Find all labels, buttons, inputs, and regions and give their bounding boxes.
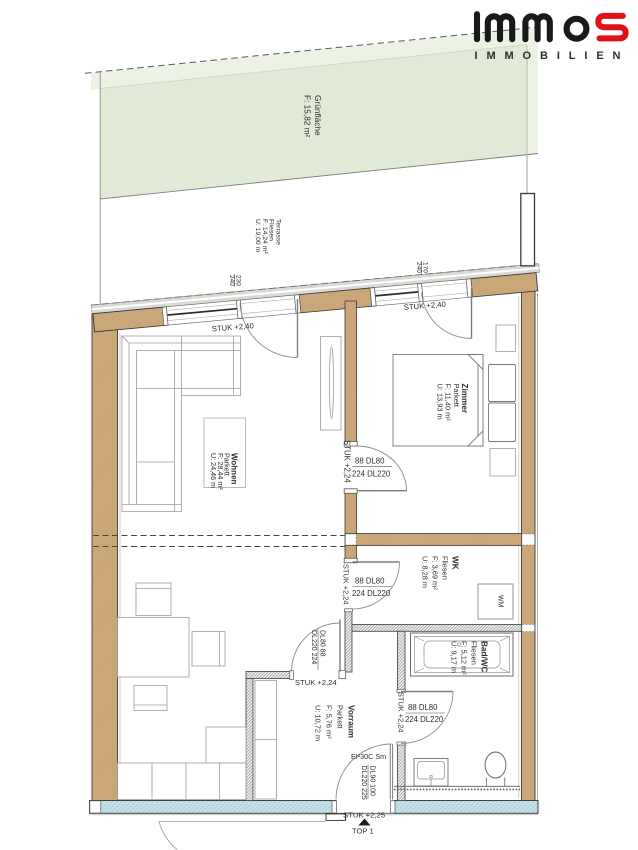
svg-text:STUK +2,24: STUK +2,24 [397,692,406,732]
svg-text:EI²30C Sm: EI²30C Sm [351,752,386,761]
svg-text:STUK +2,24: STUK +2,24 [342,564,351,604]
svg-text:TOP 1: TOP 1 [352,827,374,836]
svg-text:224 DL220: 224 DL220 [352,589,391,598]
svg-text:Bad/WCFliesenF: 5,12 m²U: 9,17: Bad/WCFliesenF: 5,12 m²U: 9,17 m [450,641,489,675]
svg-text:88 DL80: 88 DL80 [355,457,385,466]
svg-text:WM: WM [497,595,504,608]
svg-text:88 DL80: 88 DL80 [408,703,438,712]
svg-text:88 DL80: 88 DL80 [355,577,385,586]
svg-text:GrünflächeF: 15,82 m²: GrünflächeF: 15,82 m² [303,95,324,138]
svg-text:STUK +2,25: STUK +2,25 [343,811,385,820]
svg-text:STUK +2,24: STUK +2,24 [343,440,352,483]
svg-text:224 DL220: 224 DL220 [352,470,391,479]
svg-text:STUK +2,24: STUK +2,24 [295,678,337,687]
svg-text:224 DL220: 224 DL220 [405,715,444,724]
